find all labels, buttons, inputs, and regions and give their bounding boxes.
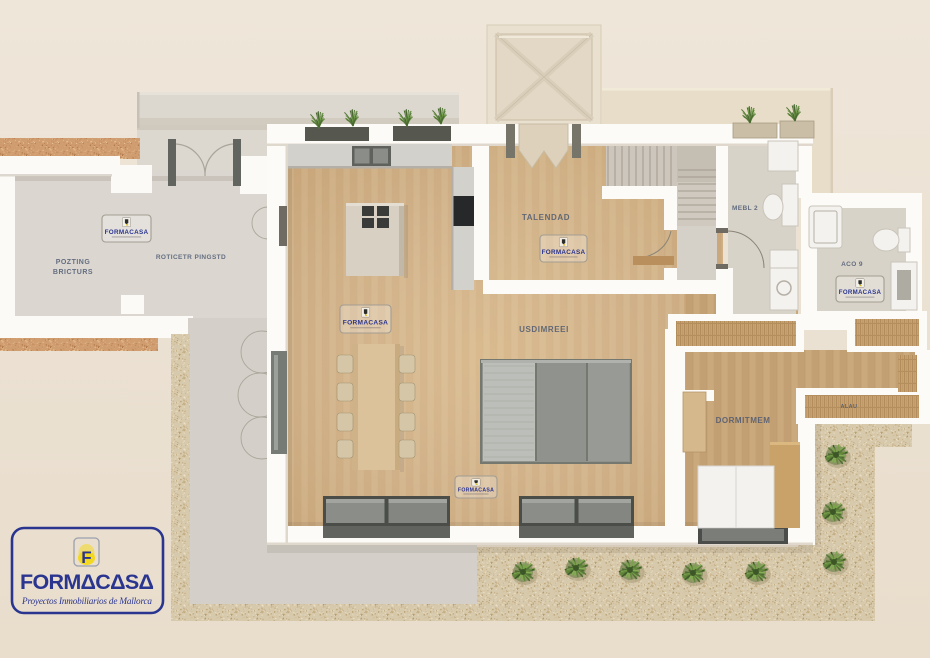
svg-text:FORMACASA: FORMACASA xyxy=(839,289,882,296)
svg-text:ROTICETR PINGSTD: ROTICETR PINGSTD xyxy=(156,254,226,261)
svg-text:DORMITMEM: DORMITMEM xyxy=(716,416,771,425)
svg-text:POZTING: POZTING xyxy=(56,259,91,266)
svg-text:MEBL 2: MEBL 2 xyxy=(732,205,758,212)
svg-text:Proyectos Inmobiliarios de Mal: Proyectos Inmobiliarios de Mallorca xyxy=(21,596,152,606)
svg-text:F: F xyxy=(81,548,91,567)
svg-text:FORMACASA: FORMACASA xyxy=(542,249,586,256)
svg-text:FORMACASA: FORMACASA xyxy=(458,487,494,493)
svg-text:FORMACASA: FORMACASA xyxy=(343,320,388,327)
svg-text:ALAU: ALAU xyxy=(841,404,858,410)
svg-text:FORMACASA: FORMACASA xyxy=(105,229,149,236)
svg-text:BRICTURS: BRICTURS xyxy=(53,269,93,276)
svg-text:ACO 9: ACO 9 xyxy=(841,261,863,268)
svg-text:FORMΔCΔSΔ: FORMΔCΔSΔ xyxy=(20,570,154,594)
svg-text:USDIMREEI: USDIMREEI xyxy=(519,325,569,334)
svg-text:TALENDAD: TALENDAD xyxy=(522,213,570,222)
